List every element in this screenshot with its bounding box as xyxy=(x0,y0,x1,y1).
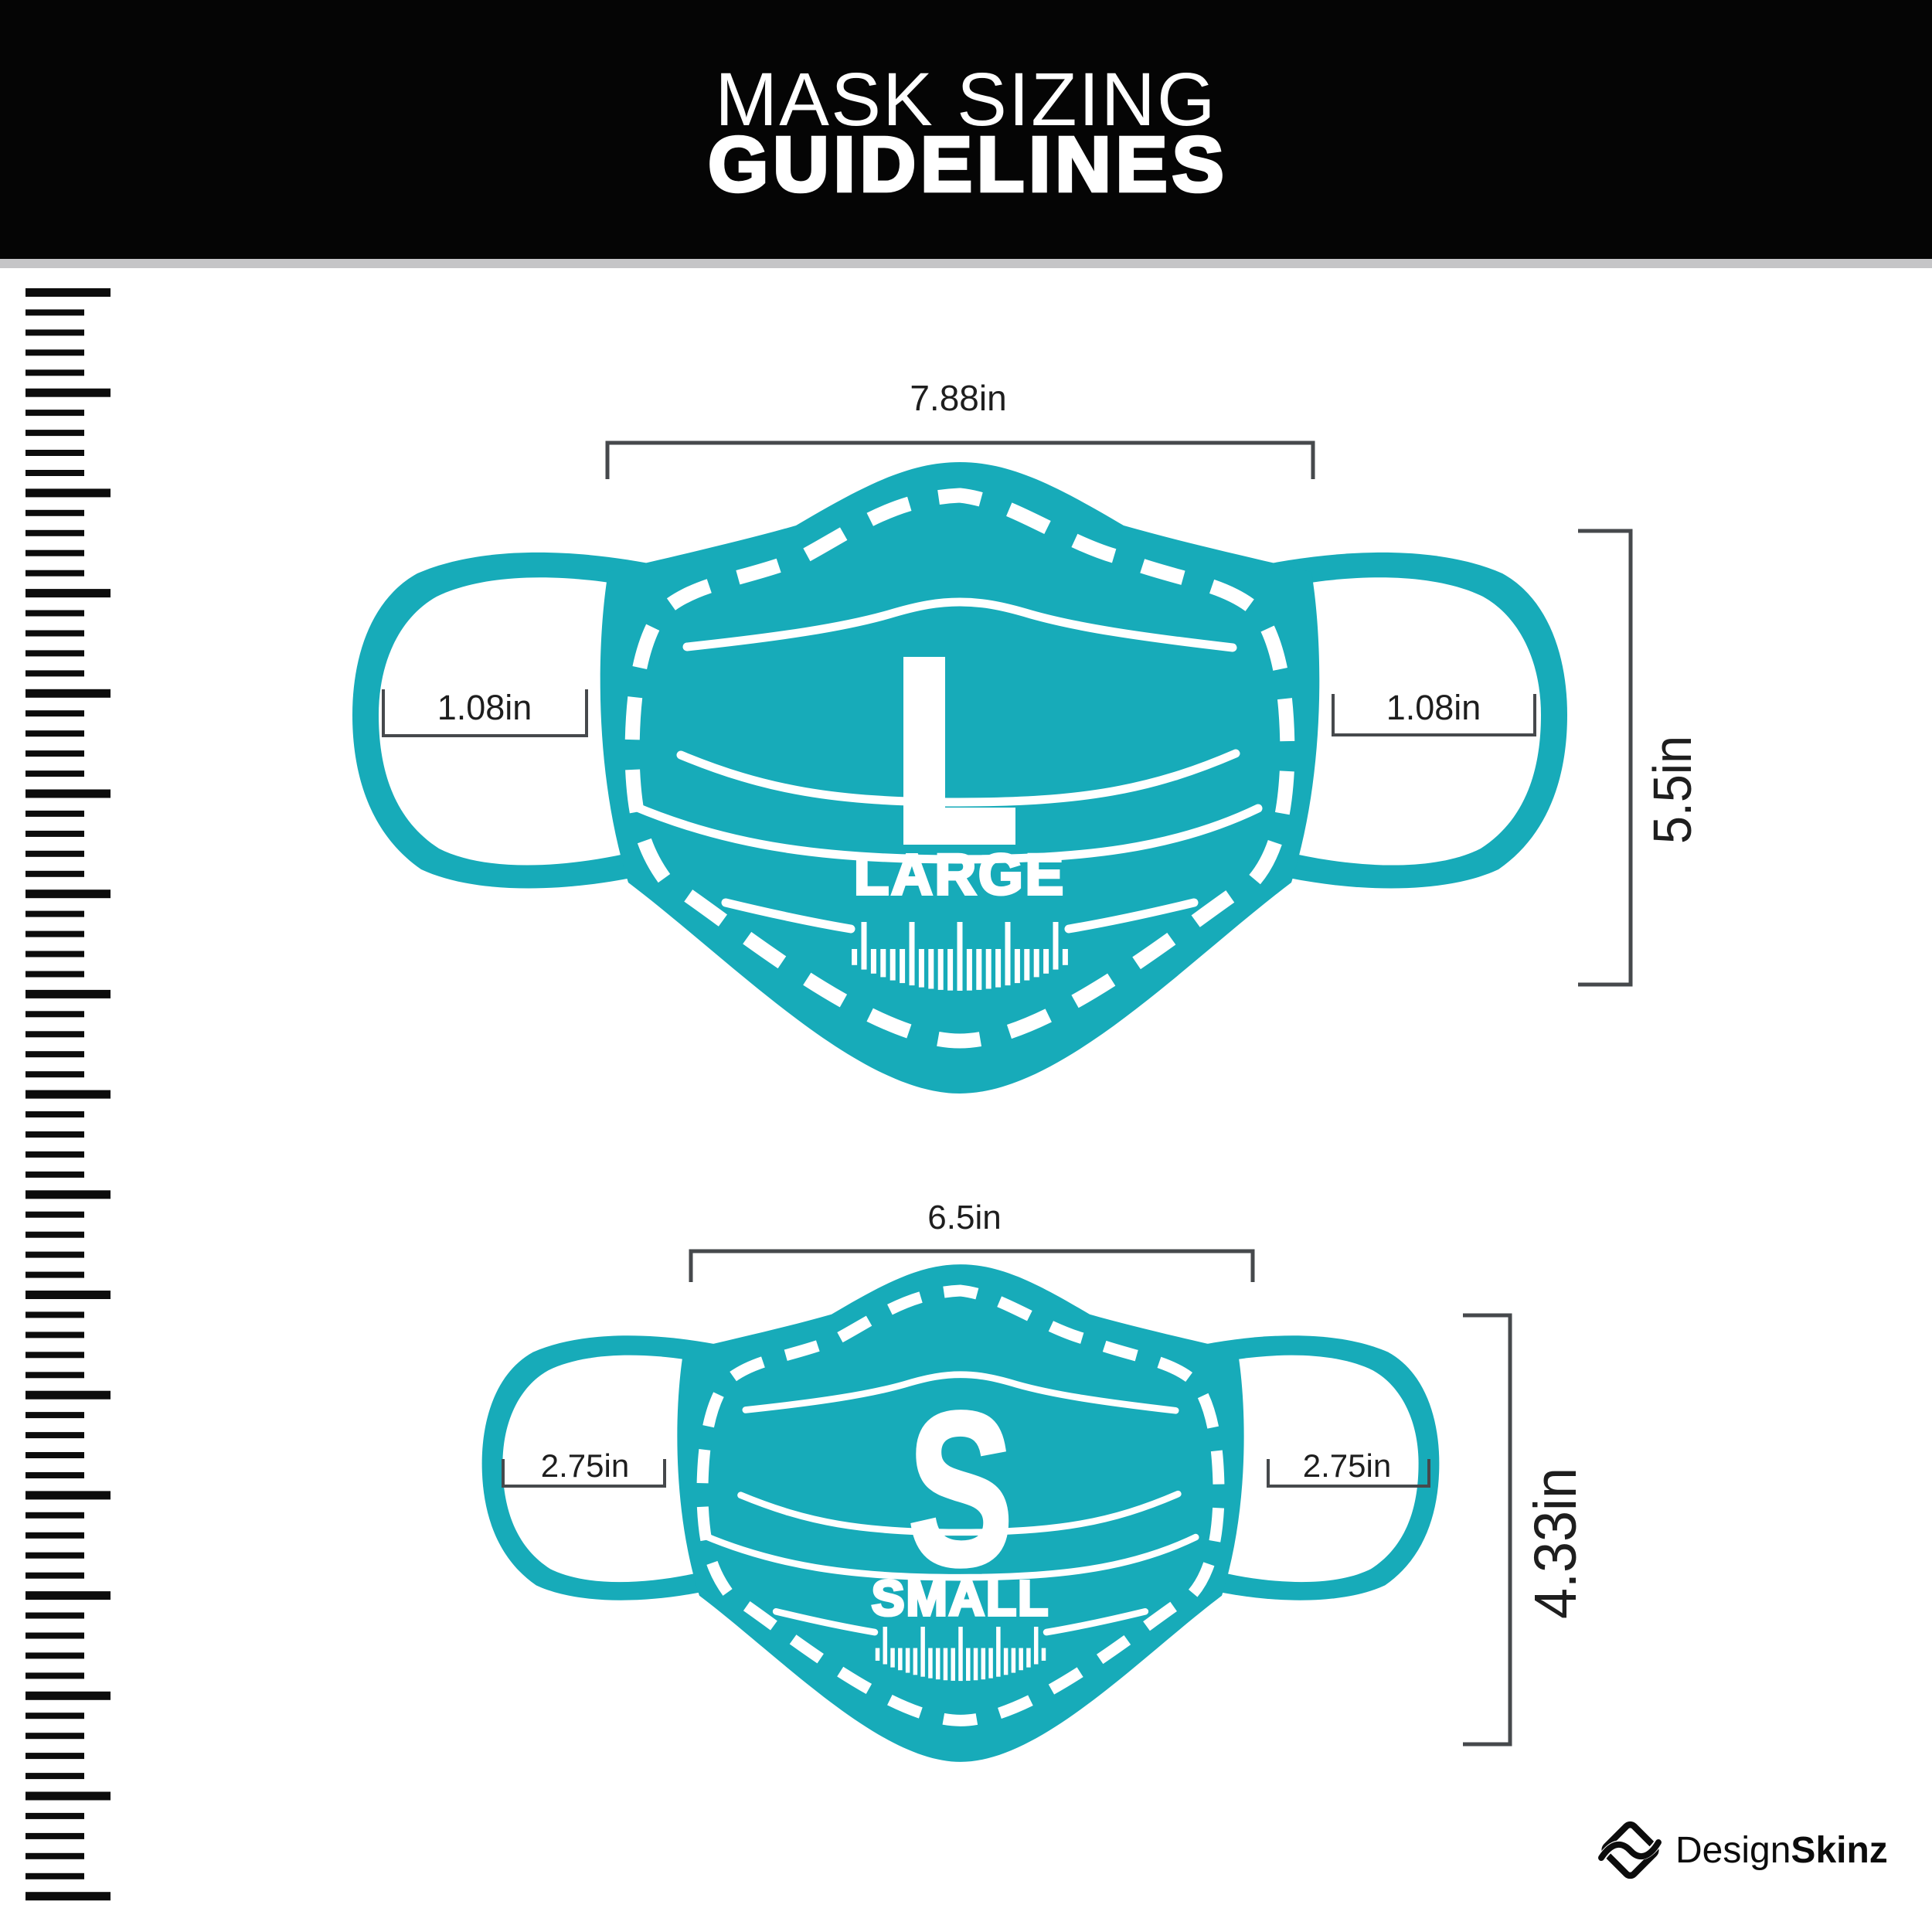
svg-text:2.75in: 2.75in xyxy=(541,1447,629,1484)
svg-text:5.5in: 5.5in xyxy=(1642,736,1702,844)
svg-text:DesignSkinz: DesignSkinz xyxy=(1675,1830,1888,1871)
svg-text:GUIDELINES: GUIDELINES xyxy=(708,121,1228,208)
svg-text:LARGE: LARGE xyxy=(854,842,1066,906)
svg-text:1.08in: 1.08in xyxy=(437,688,532,727)
svg-text:2.75in: 2.75in xyxy=(1303,1447,1391,1484)
svg-text:1.08in: 1.08in xyxy=(1386,688,1481,727)
svg-text:SMALL: SMALL xyxy=(872,1570,1049,1626)
svg-text:7.88in: 7.88in xyxy=(910,378,1006,418)
svg-text:6.5in: 6.5in xyxy=(927,1199,1001,1236)
svg-text:4.33in: 4.33in xyxy=(1522,1468,1589,1619)
